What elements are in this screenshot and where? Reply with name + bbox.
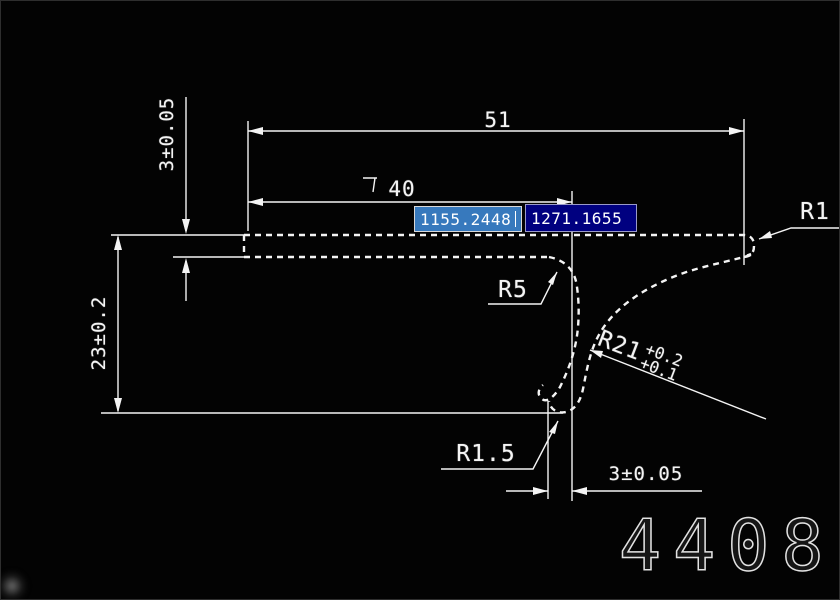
dim-thickness-label: 3±0.05 <box>156 97 178 172</box>
dynamic-input-x-field[interactable]: 1155.2448 <box>414 206 522 232</box>
part-profile-outline <box>244 235 754 412</box>
radius-r1-label: R1 <box>800 199 830 225</box>
text-cursor <box>515 211 516 227</box>
dim-inner-width-label: 40 <box>388 177 415 201</box>
cursor-mark <box>363 178 377 192</box>
radius-r5-label: R5 <box>498 277 528 303</box>
strip-top-edge <box>244 235 754 246</box>
radius-r1-5-label: R1.5 <box>456 441 515 467</box>
dim-hook-offset-label: 3±0.05 <box>609 463 684 485</box>
dynamic-input-y-value: 1271.1655 <box>531 209 622 228</box>
cad-drawing-canvas[interactable]: 51 40 3±0.05 23±0.2 3±0.05 R5 R1.5 R1 R2… <box>0 0 840 600</box>
outer-sweep-curve <box>549 255 751 412</box>
dynamic-input-y-field[interactable]: 1271.1655 <box>525 204 637 232</box>
dim-height-label: 23±0.2 <box>88 296 110 371</box>
part-number-text: 4408 <box>619 505 836 587</box>
dim-top-width-label: 51 <box>484 108 511 132</box>
dynamic-input-x-value: 1155.2448 <box>420 210 511 229</box>
dimension-arrowheads <box>114 127 772 495</box>
screen-corner-artifact <box>0 569 29 600</box>
